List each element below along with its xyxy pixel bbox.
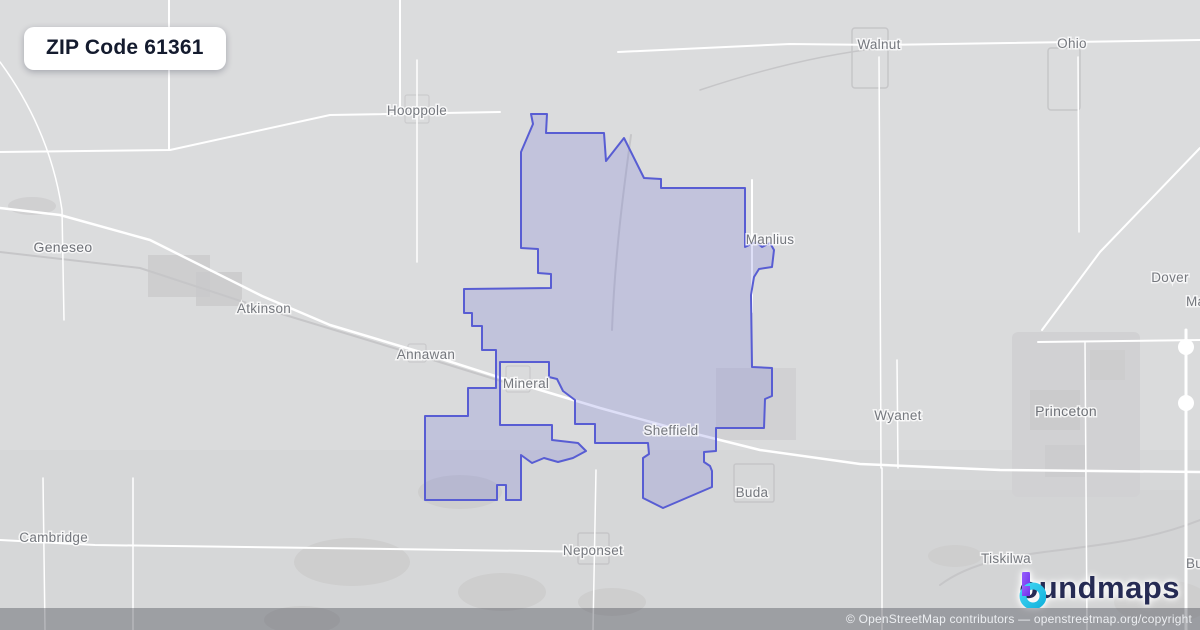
map-viewport[interactable]: HooppoleGeneseoAtkinsonAnnawanMineralShe… xyxy=(0,0,1200,630)
town-label-mineral: Mineral xyxy=(503,376,549,391)
boundmaps-b-icon xyxy=(1019,572,1046,608)
town-label-hooppole: Hooppole xyxy=(387,103,447,118)
town-label-tiskilwa: Tiskilwa xyxy=(981,551,1031,566)
boundmaps-logo[interactable]: oundmaps xyxy=(1019,572,1180,603)
attribution-bar[interactable]: © OpenStreetMap contributors — openstree… xyxy=(0,608,1200,630)
town-label-princeton: Princeton xyxy=(1035,403,1097,419)
town-label-malden: Malden xyxy=(1186,294,1200,309)
town-label-cambridge: Cambridge xyxy=(19,530,88,545)
town-label-buda: Buda xyxy=(736,485,769,500)
town-label-ohio: Ohio xyxy=(1057,36,1087,51)
town-label-neponset: Neponset xyxy=(563,543,623,558)
town-label-wyanet: Wyanet xyxy=(874,408,921,423)
town-label-atkinson: Atkinson xyxy=(237,301,291,316)
town-label-geneseo: Geneseo xyxy=(34,239,93,255)
town-label-annawan: Annawan xyxy=(397,347,455,362)
map-canvas[interactable]: HooppoleGeneseoAtkinsonAnnawanMineralShe… xyxy=(0,0,1200,630)
town-label-walnut: Walnut xyxy=(857,37,900,52)
town-label-dover: Dover xyxy=(1151,270,1189,285)
town-label-sheffield: Sheffield xyxy=(644,423,699,438)
town-label-bureau: Bureau xyxy=(1186,556,1200,571)
zip-code-badge: ZIP Code 61361 xyxy=(24,27,226,70)
town-label-manlius: Manlius xyxy=(746,232,795,247)
